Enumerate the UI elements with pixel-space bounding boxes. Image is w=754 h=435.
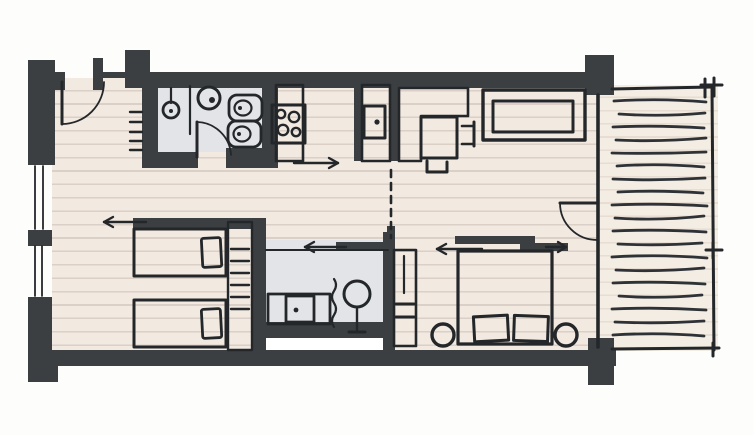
faucet-dot (294, 308, 299, 313)
burner-icon (289, 112, 299, 122)
burner-icon (278, 125, 288, 135)
wall-column-bottom-right (588, 338, 614, 385)
burner-icon (277, 110, 285, 118)
nightstand-icon (432, 324, 454, 346)
shower-room-floor (264, 240, 386, 324)
dining-table (421, 117, 457, 158)
kitchen-divider-2 (390, 85, 399, 161)
deck-board (615, 216, 704, 219)
entrance-lintel (100, 72, 127, 78)
deck-board (613, 126, 704, 128)
deck-board (612, 152, 706, 153)
arrow-kitchen-flow (294, 158, 338, 168)
bidet-dot (237, 132, 241, 136)
closet-shelf-ticks (396, 304, 414, 317)
deck-board (613, 282, 705, 284)
deck-board (619, 295, 702, 297)
white-strip (264, 338, 388, 351)
deck-boards (612, 100, 707, 336)
floor-plan (0, 0, 754, 435)
toilet-dot (238, 106, 242, 110)
sofa-seat (493, 101, 573, 132)
deck-board (612, 204, 707, 206)
twin-bed-1 (134, 229, 226, 276)
shower-drain-dot (169, 109, 173, 113)
deck-board (613, 334, 704, 336)
bedroom-sliding-panel-1 (455, 236, 535, 244)
wall-column-top-right (585, 55, 614, 95)
pillow (514, 315, 549, 341)
chair-icon (462, 122, 474, 146)
kitchen (272, 85, 390, 168)
wall-left-stub (28, 230, 52, 246)
deck-board (618, 191, 703, 193)
radiator-ticks (130, 112, 142, 150)
twin-bed-2 (134, 300, 226, 347)
deck-board (616, 138, 706, 141)
bathroom-wall-bottom (142, 152, 198, 168)
shelf-rungs (231, 249, 249, 309)
terrace-edge-bottom (612, 348, 719, 349)
pillow (201, 308, 221, 338)
deck-board (616, 268, 704, 271)
pillow (201, 237, 221, 267)
wall-bottom (50, 350, 616, 366)
faucet-dot (374, 119, 379, 124)
double-bedroom (432, 242, 577, 346)
nightstand-icon (555, 324, 577, 346)
terrace-door-swing (560, 203, 597, 240)
deck-board (612, 308, 706, 310)
chair-icon (427, 161, 447, 172)
deck-board (618, 243, 702, 245)
terrace-edge-top (612, 87, 713, 89)
twin-room-sliding-track (133, 218, 263, 229)
twin-bed-room (104, 217, 252, 350)
terrace-edge-right (712, 87, 714, 350)
deck-board (615, 321, 704, 323)
dining-area (399, 88, 585, 172)
deck-board (614, 100, 706, 102)
deck-board (613, 178, 705, 180)
double-bed (458, 251, 552, 344)
pillow (473, 315, 508, 342)
deck-board (619, 113, 705, 115)
deck-board (612, 256, 707, 258)
wall-left-lower (28, 297, 52, 355)
washbasin-drain-dot (209, 97, 215, 103)
wall-top-left-block (28, 60, 55, 165)
plan-drawing (0, 0, 754, 435)
deck-board (617, 165, 704, 167)
deck-board (613, 230, 706, 232)
kitchen-cabinet-stove (276, 85, 303, 161)
burner-icon (292, 128, 300, 136)
terrace (598, 78, 722, 356)
